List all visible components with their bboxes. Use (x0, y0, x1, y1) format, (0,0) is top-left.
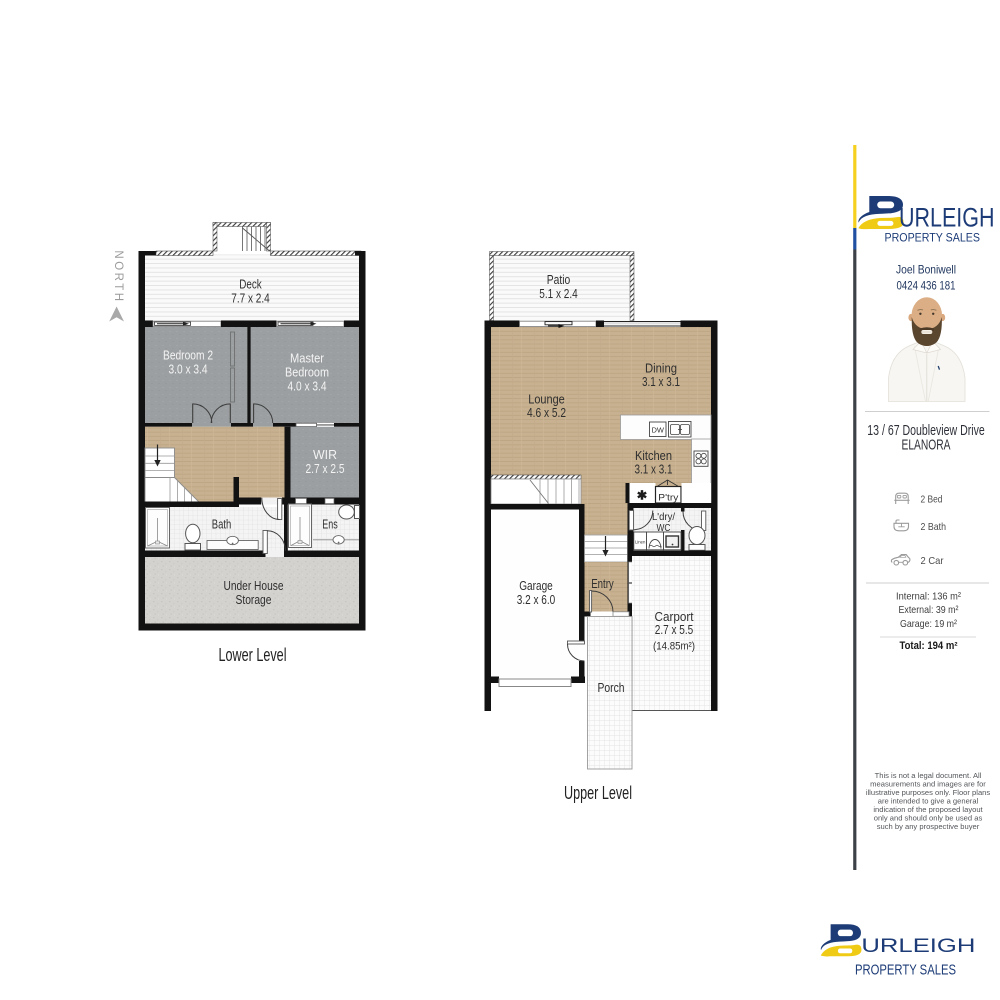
svg-text:2.7 x 5.5: 2.7 x 5.5 (655, 622, 694, 637)
svg-text:Porch: Porch (598, 680, 625, 695)
svg-text:WIR: WIR (313, 447, 337, 462)
svg-text:Ens: Ens (322, 517, 338, 532)
svg-text:Bath: Bath (212, 517, 232, 532)
svg-text:2.7 x 2.5: 2.7 x 2.5 (306, 461, 345, 476)
svg-text:PROPERTY SALES: PROPERTY SALES (885, 230, 981, 244)
svg-text:P'try: P'try (658, 493, 678, 504)
svg-text:Master: Master (290, 351, 325, 366)
svg-text:Storage: Storage (236, 592, 272, 607)
svg-text:URLEIGH: URLEIGH (899, 202, 995, 232)
svg-text:Linen: Linen (635, 540, 646, 545)
svg-text:2 Car: 2 Car (921, 555, 944, 567)
svg-text:Total: 194 m²: Total: 194 m² (900, 640, 958, 652)
svg-text:such by any prospective buyer: such by any prospective buyer (877, 822, 980, 831)
svg-text:0424 436 181: 0424 436 181 (897, 279, 956, 293)
svg-text:3.1 x 3.1: 3.1 x 3.1 (635, 462, 673, 477)
svg-text:3.1 x 3.1: 3.1 x 3.1 (642, 374, 680, 389)
svg-text:4.0 x 3.4: 4.0 x 3.4 (288, 379, 327, 394)
svg-text:✱: ✱ (637, 489, 648, 503)
svg-text:DW: DW (651, 426, 664, 435)
svg-text:3.0 x 3.4: 3.0 x 3.4 (169, 362, 208, 377)
svg-text:NORTH: NORTH (112, 250, 124, 303)
svg-text:4.6 x 5.2: 4.6 x 5.2 (527, 405, 566, 420)
svg-text:Deck: Deck (239, 277, 262, 292)
svg-text:(14.85m²): (14.85m²) (653, 641, 695, 653)
svg-text:7.7 x 2.4: 7.7 x 2.4 (231, 291, 270, 306)
svg-text:2 Bath: 2 Bath (921, 521, 947, 533)
svg-text:External: 39 m²: External: 39 m² (899, 605, 960, 616)
svg-text:Internal: 136 m²: Internal: 136 m² (896, 592, 962, 603)
svg-text:Under House: Under House (224, 578, 284, 593)
svg-text:3.2 x 6.0: 3.2 x 6.0 (517, 592, 556, 607)
svg-text:Patio: Patio (547, 272, 571, 287)
svg-text:5.1 x 2.4: 5.1 x 2.4 (539, 286, 578, 301)
svg-text:Bedroom: Bedroom (285, 365, 329, 380)
svg-text:URLEIGH: URLEIGH (861, 935, 975, 957)
svg-text:PROPERTY SALES: PROPERTY SALES (855, 963, 956, 979)
svg-text:Entry: Entry (591, 577, 614, 591)
svg-text:Garage: 19 m²: Garage: 19 m² (900, 619, 958, 630)
svg-text:2 Bed: 2 Bed (921, 494, 943, 506)
svg-text:Bedroom 2: Bedroom 2 (163, 348, 213, 363)
svg-text:ELANORA: ELANORA (902, 437, 951, 454)
svg-text:Lower Level: Lower Level (219, 644, 287, 665)
svg-text:Upper Level: Upper Level (564, 782, 632, 803)
svg-text:Joel Boniwell: Joel Boniwell (896, 263, 956, 277)
svg-text:Garage: Garage (519, 578, 553, 593)
